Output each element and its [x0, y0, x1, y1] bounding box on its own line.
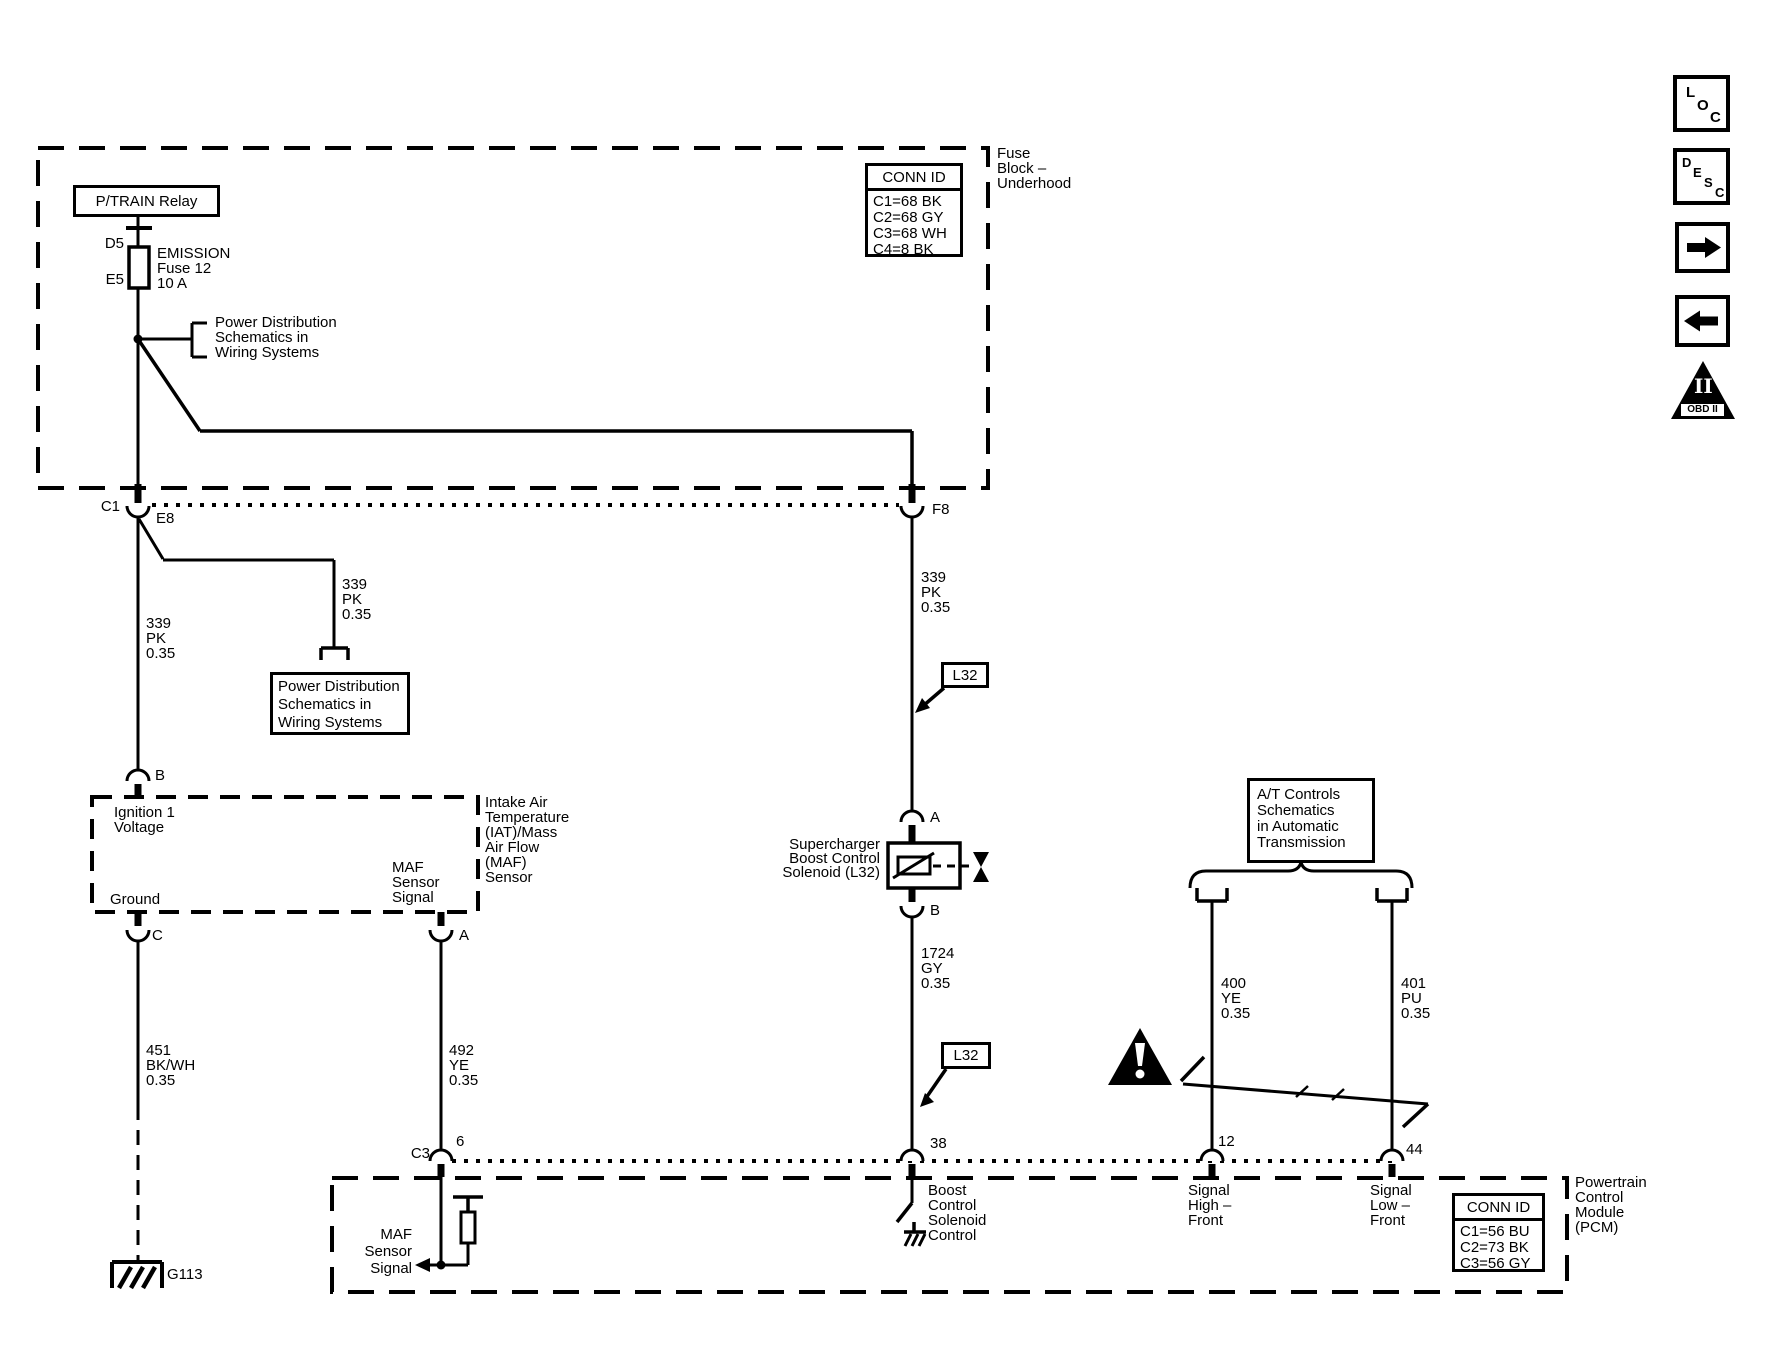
label-line: MAF [360, 1226, 412, 1243]
label-line: 339 [146, 616, 175, 631]
label-line: Block – [997, 161, 1071, 176]
label-line: 10 A [157, 276, 230, 291]
obd-numeral: II [1694, 376, 1713, 396]
label-line: in Automatic [1257, 819, 1372, 835]
pcm-signal-high-label: Signal High – Front [1188, 1183, 1231, 1228]
label-line: 451 [146, 1043, 195, 1058]
pin-38 [901, 1150, 923, 1177]
label-line: Wiring Systems [278, 714, 407, 732]
label-line: Ignition 1 [114, 805, 175, 820]
label-line: Solenoid (L32) [760, 866, 880, 880]
pin-label-c3: C3 [403, 1146, 430, 1161]
label-line: Schematics [1257, 803, 1372, 819]
l32-ref-lower-box[interactable]: L32 [941, 1042, 991, 1069]
label-line: 0.35 [1221, 1006, 1250, 1021]
label-line: Sensor [392, 875, 440, 890]
label-line: Fuse 12 [157, 261, 230, 276]
label-line: Control [1575, 1190, 1647, 1205]
label-line: High – [1188, 1198, 1231, 1213]
label-line: Low – [1370, 1198, 1412, 1213]
pcm-boost-driver [897, 1177, 926, 1246]
power-dist-ref-text[interactable]: Power Distribution Schematics in Wiring … [215, 315, 337, 360]
label-line: PK [921, 585, 950, 600]
pcm-boost-control-label: Boost Control Solenoid Control [928, 1183, 986, 1243]
wire-label-492: 492 YE 0.35 [449, 1043, 478, 1088]
right-arrow-icon [1679, 226, 1726, 269]
wire-label-339-right: 339 PK 0.35 [921, 570, 950, 615]
nav-desc-button[interactable]: D E S C [1673, 148, 1730, 205]
l32-ref-label: L32 [952, 667, 977, 684]
pin-label-6: 6 [456, 1134, 464, 1149]
label-line: Module [1575, 1205, 1647, 1220]
label-line: 1724 [921, 946, 954, 961]
label-line: 0.35 [921, 600, 950, 615]
conn-id-row: C2=68 GY [873, 210, 956, 226]
label-line: Solenoid [928, 1213, 986, 1228]
label-line: Signal [392, 890, 440, 905]
label-line: Boost [928, 1183, 986, 1198]
pin-label-c1: C1 [93, 499, 120, 514]
power-dist-ref-box[interactable]: Power Distribution Schematics in Wiring … [270, 672, 410, 735]
label-line: Temperature [485, 810, 569, 825]
pin-label-sol-b: B [930, 903, 940, 918]
wire-label-1724: 1724 GY 0.35 [921, 946, 954, 991]
fuse-block-label: Fuse Block – Underhood [997, 146, 1071, 191]
label-line: Front [1370, 1213, 1412, 1228]
label-line: 0.35 [342, 607, 371, 622]
nav-back-button[interactable] [1675, 295, 1730, 347]
ground-id-label: G113 [167, 1267, 203, 1282]
label-line: Front [1188, 1213, 1231, 1228]
label-line: 0.35 [1401, 1006, 1430, 1021]
loc-letter: O [1697, 97, 1709, 114]
pin-label-sol-a: A [930, 810, 940, 825]
desc-letter: E [1693, 165, 1702, 180]
loc-letter: L [1686, 84, 1695, 101]
pin-maf-b [127, 770, 149, 797]
fuse-label: EMISSION Fuse 12 10 A [157, 246, 230, 291]
wire-label-339-left: 339 PK 0.35 [146, 616, 175, 661]
conn-id-header: CONN ID [868, 166, 960, 191]
label-line: PK [342, 592, 371, 607]
label-line: 339 [342, 577, 371, 592]
label-line: 0.35 [449, 1073, 478, 1088]
label-line: Air Flow [485, 840, 569, 855]
pin-maf-c [127, 912, 149, 941]
ptrain-relay-box: P/TRAIN Relay [73, 185, 220, 217]
obd-label: OBD II [1681, 404, 1724, 416]
label-line: (IAT)/Mass [485, 825, 569, 840]
conn-id-row: C3=68 WH [873, 226, 956, 242]
label-line: Control [928, 1198, 986, 1213]
at-connector-right [1377, 888, 1407, 901]
fuse-pin-d5: D5 [98, 236, 124, 251]
label-line: Power Distribution [215, 315, 337, 330]
label-line: 400 [1221, 976, 1250, 991]
label-line: Sensor [485, 870, 569, 885]
wiring-diagram-page: P/TRAIN Relay CONN ID C1=68 BK C2=68 GY … [0, 0, 1772, 1368]
wire-label-401: 401 PU 0.35 [1401, 976, 1430, 1021]
left-arrow-icon [1679, 299, 1726, 343]
label-line: Control [928, 1228, 986, 1243]
label-line: MAF [392, 860, 440, 875]
label-line: Schematics in [278, 696, 407, 714]
fuse-pin-e5: E5 [98, 272, 124, 287]
conn-id-rows: C1=56 BU C2=73 BK C3=56 GY [1455, 1221, 1542, 1274]
ptrain-relay-label: P/TRAIN Relay [96, 193, 198, 210]
pin-c3-6 [430, 1150, 452, 1177]
l32-lower-arrow [920, 1069, 946, 1107]
pin-maf-a [430, 912, 452, 941]
wire-label-339-branch: 339 PK 0.35 [342, 577, 371, 622]
label-line: Signal [1188, 1183, 1231, 1198]
label-line: 0.35 [146, 646, 175, 661]
pin-label-maf-c: C [152, 928, 163, 943]
pin-44 [1381, 1150, 1403, 1177]
label-line: Underhood [997, 176, 1071, 191]
label-line: BK/WH [146, 1058, 195, 1073]
pcm-maf-signal-label: MAF Sensor Signal [360, 1226, 412, 1277]
l32-ref-label: L32 [953, 1047, 978, 1064]
label-line: Voltage [114, 820, 175, 835]
conn-id-header: CONN ID [1455, 1196, 1542, 1221]
at-controls-ref-box[interactable]: A/T Controls Schematics in Automatic Tra… [1247, 778, 1375, 863]
label-line: Power Distribution [278, 678, 407, 696]
conn-id-row: C1=68 BK [873, 194, 956, 210]
pin-label-maf-b: B [155, 768, 165, 783]
pin-label-12: 12 [1218, 1134, 1235, 1149]
conn-id-row: C3=56 GY [1460, 1256, 1538, 1272]
nav-forward-button[interactable] [1675, 222, 1730, 273]
pin-label-f8: F8 [932, 502, 950, 517]
obd-ii-icon[interactable]: II OBD II [1671, 360, 1735, 420]
wire-label-400: 400 YE 0.35 [1221, 976, 1250, 1021]
label-line: Powertrain [1575, 1175, 1647, 1190]
maf-signal-label: MAF Sensor Signal [392, 860, 440, 905]
pcm-name-label: Powertrain Control Module (PCM) [1575, 1175, 1647, 1235]
desc-letter: C [1715, 185, 1724, 200]
label-line: Schematics in [215, 330, 337, 345]
label-line: 401 [1401, 976, 1430, 991]
pcm-signal-low-label: Signal Low – Front [1370, 1183, 1412, 1228]
loc-letter: C [1710, 109, 1721, 126]
label-line: Transmission [1257, 835, 1372, 851]
maf-ignition-label: Ignition 1 Voltage [114, 805, 175, 835]
desc-letter: S [1704, 175, 1713, 190]
pcm-maf-circuit [415, 1177, 483, 1272]
ground-symbol-g113 [112, 1262, 162, 1288]
pin-label-maf-a: A [459, 928, 469, 943]
pin-label-e8: E8 [156, 511, 174, 526]
label-line: 0.35 [146, 1073, 195, 1088]
desc-letter: D [1682, 155, 1691, 170]
conn-id-row: C4=8 BK [873, 242, 956, 258]
label-line: PK [146, 631, 175, 646]
label-line: EMISSION [157, 246, 230, 261]
label-line: Sensor [360, 1243, 412, 1260]
conn-id-box-pcm: CONN ID C1=56 BU C2=73 BK C3=56 GY [1452, 1193, 1545, 1272]
pin-label-38: 38 [930, 1136, 947, 1151]
label-line: Signal [360, 1260, 412, 1277]
label-line: GY [921, 961, 954, 976]
label-line: 492 [449, 1043, 478, 1058]
wire-label-451: 451 BK/WH 0.35 [146, 1043, 195, 1088]
conn-id-row: C2=73 BK [1460, 1240, 1538, 1256]
at-controls-brace [1190, 862, 1412, 888]
pin-label-44: 44 [1406, 1142, 1423, 1157]
conn-id-row: C1=56 BU [1460, 1224, 1538, 1240]
warning-triangle-icon [1108, 1028, 1172, 1085]
label-line: (MAF) [485, 855, 569, 870]
relay-fuse-circuit [126, 217, 152, 484]
label-line: (PCM) [1575, 1220, 1647, 1235]
label-line: 339 [921, 570, 950, 585]
label-line: Fuse [997, 146, 1071, 161]
label-line: Intake Air [485, 795, 569, 810]
l32-ref-upper-box[interactable]: L32 [941, 662, 989, 688]
label-line: YE [449, 1058, 478, 1073]
label-line: 0.35 [921, 976, 954, 991]
at-connector-left [1197, 888, 1227, 901]
conn-id-box-underhood: CONN ID C1=68 BK C2=68 GY C3=68 WH C4=8 … [865, 163, 963, 257]
pin-12 [1201, 1150, 1223, 1177]
label-line: Wiring Systems [215, 345, 337, 360]
label-line: A/T Controls [1257, 787, 1372, 803]
nav-loc-button[interactable]: L O C [1673, 75, 1730, 132]
label-line: Signal [1370, 1183, 1412, 1198]
label-line: PU [1401, 991, 1430, 1006]
l32-upper-arrow [915, 688, 944, 713]
label-line: YE [1221, 991, 1250, 1006]
maf-ground-label: Ground [110, 892, 160, 907]
solenoid-name-label: Supercharger Boost Control Solenoid (L32… [760, 838, 880, 880]
maf-sensor-name-label: Intake Air Temperature (IAT)/Mass Air Fl… [485, 795, 569, 885]
conn-id-rows: C1=68 BK C2=68 GY C3=68 WH C4=8 BK [868, 191, 960, 260]
